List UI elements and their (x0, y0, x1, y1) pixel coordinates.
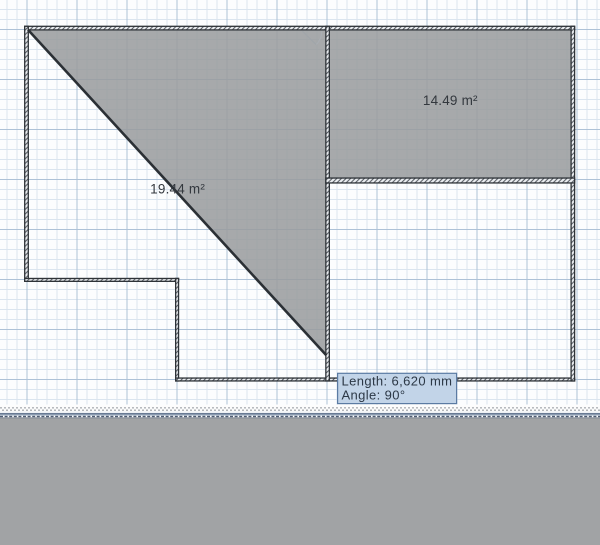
svg-text:14.49 m²: 14.49 m² (423, 93, 478, 108)
svg-text:19.44 m²: 19.44 m² (150, 181, 205, 196)
svg-text:Angle: 90°: Angle: 90° (342, 388, 406, 403)
svg-text:Length: 6,620 mm: Length: 6,620 mm (342, 374, 453, 389)
